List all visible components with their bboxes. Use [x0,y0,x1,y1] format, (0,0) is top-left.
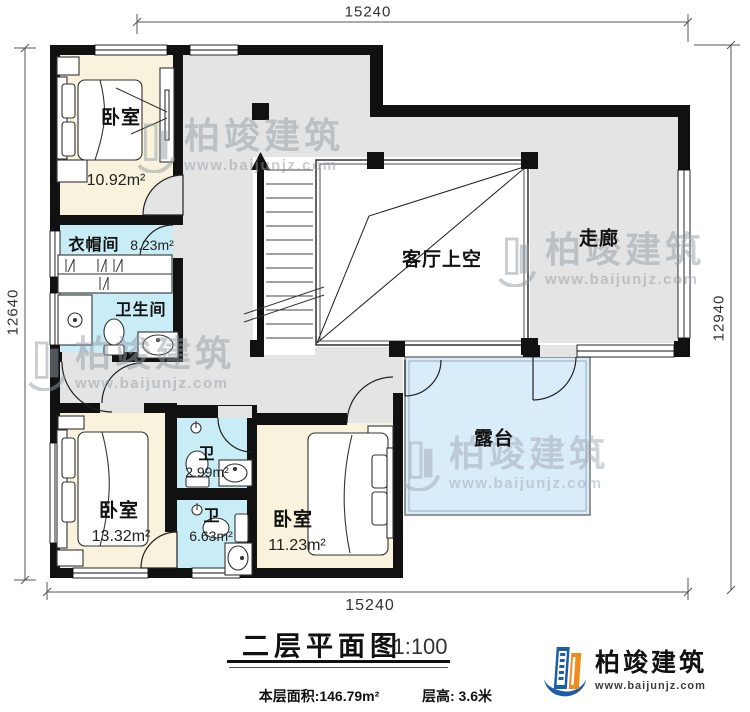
room-label-bedroom-bl: 卧室 [99,496,139,523]
room-label-bedroom-br: 卧室 [273,505,313,532]
closet-icon [58,255,172,293]
room-label-living-void: 客厅上空 [402,245,482,272]
title-underline-thin [229,667,448,668]
toilet-icon [104,319,124,355]
title-underline-thick [227,660,450,663]
room-area-bedroom-bl: 13.32m² [92,528,151,546]
room-label-bedroom-tl: 卧室 [101,103,141,130]
floor-height-note: 层高: 3.6米 [422,686,492,706]
floor-area-note: 本层面积:146.79m² [259,686,380,706]
company-logo-icon [541,643,587,699]
bed-icon [308,426,393,555]
dimension-top: 15240 [345,4,392,21]
drawing-title: 二层平面图 [242,625,402,664]
room-label-terrace: 露台 [474,424,514,451]
room-area-wc-large: 6.63m² [189,528,233,544]
room-area-wc-small: 2.99m² [185,464,229,480]
room-label-corridor: 走廊 [579,224,619,251]
room-label-wc-large: 卫 [203,502,220,526]
dimension-bottom: 15240 [345,597,395,615]
company-url: www.baijunjz.com [595,680,707,692]
room-area-bedroom-tl: 10.92m² [87,172,146,190]
sink-icon [225,543,252,575]
floor-plan-canvas: 柏竣建筑 www.baijunjz.com 柏竣建筑 www.baijunjz.… [0,0,750,712]
company-name: 柏竣建筑 [595,650,707,678]
dimension-right: 12940 [711,295,728,342]
company-logo: 柏竣建筑 www.baijunjz.com [541,643,707,699]
shower-icon [58,295,92,345]
room-area-cloakroom: 8.23m² [130,237,174,253]
room-area-bedroom-br: 11.23m² [268,537,326,555]
room-label-bathroom: 卫生间 [115,296,166,320]
room-label-wc-small: 卫 [198,440,215,464]
room-label-cloakroom: 衣帽间 [68,231,119,255]
drawing-scale: 1:100 [392,634,447,660]
sink-icon [138,332,178,358]
dimension-left: 12640 [5,289,22,336]
